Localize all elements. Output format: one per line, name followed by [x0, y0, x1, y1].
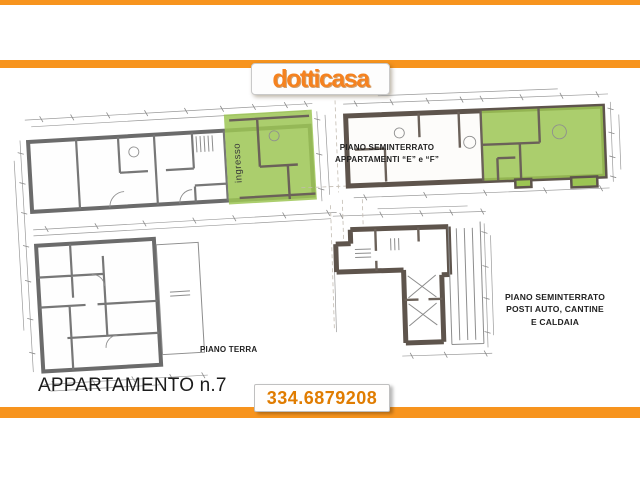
- basement-garage-caption-line2: POSTI AUTO, CANTINE: [500, 303, 610, 315]
- ground-floor-plan: ingresso: [12, 100, 346, 393]
- basement-garage-caption-line1: PIANO SEMINTERRATO: [500, 291, 610, 303]
- ground-floor-lower-wing: [36, 236, 205, 371]
- ingresso-label: ingresso: [231, 143, 244, 183]
- ground-floor-caption-text: PIANO TERRA: [200, 345, 257, 354]
- phone-number-text: 334.6879208: [267, 388, 378, 409]
- basement-garage-parking-area: [448, 222, 484, 345]
- basement-garage-walls: [335, 227, 452, 345]
- basement-apartments-caption-line1: PIANO SEMINTERRATO: [332, 142, 442, 154]
- basement-garage-plan: [330, 195, 494, 361]
- apartment-title: APPARTAMENTO n.7: [38, 375, 227, 397]
- ground-floor-highlight-area: ingresso: [224, 110, 317, 205]
- basement-apartments-caption: PIANO SEMINTERRATO APPARTAMENTI “E” e “F…: [332, 142, 442, 165]
- flyer-page: dotticasa ingresso: [0, 0, 640, 480]
- basement-garage-dimension-lines: [330, 195, 494, 361]
- ground-floor-caption: PIANO TERRA: [200, 344, 290, 356]
- phone-number-box: 334.6879208: [254, 384, 390, 412]
- basement-apartments-caption-line2: APPARTAMENTI “E” e “F”: [332, 154, 442, 166]
- basement-garage-caption-line3: E CALDAIA: [500, 316, 610, 328]
- basement-apartments-highlight-area: [481, 106, 606, 191]
- basement-garage-caption: PIANO SEMINTERRATO POSTI AUTO, CANTINE E…: [500, 291, 610, 328]
